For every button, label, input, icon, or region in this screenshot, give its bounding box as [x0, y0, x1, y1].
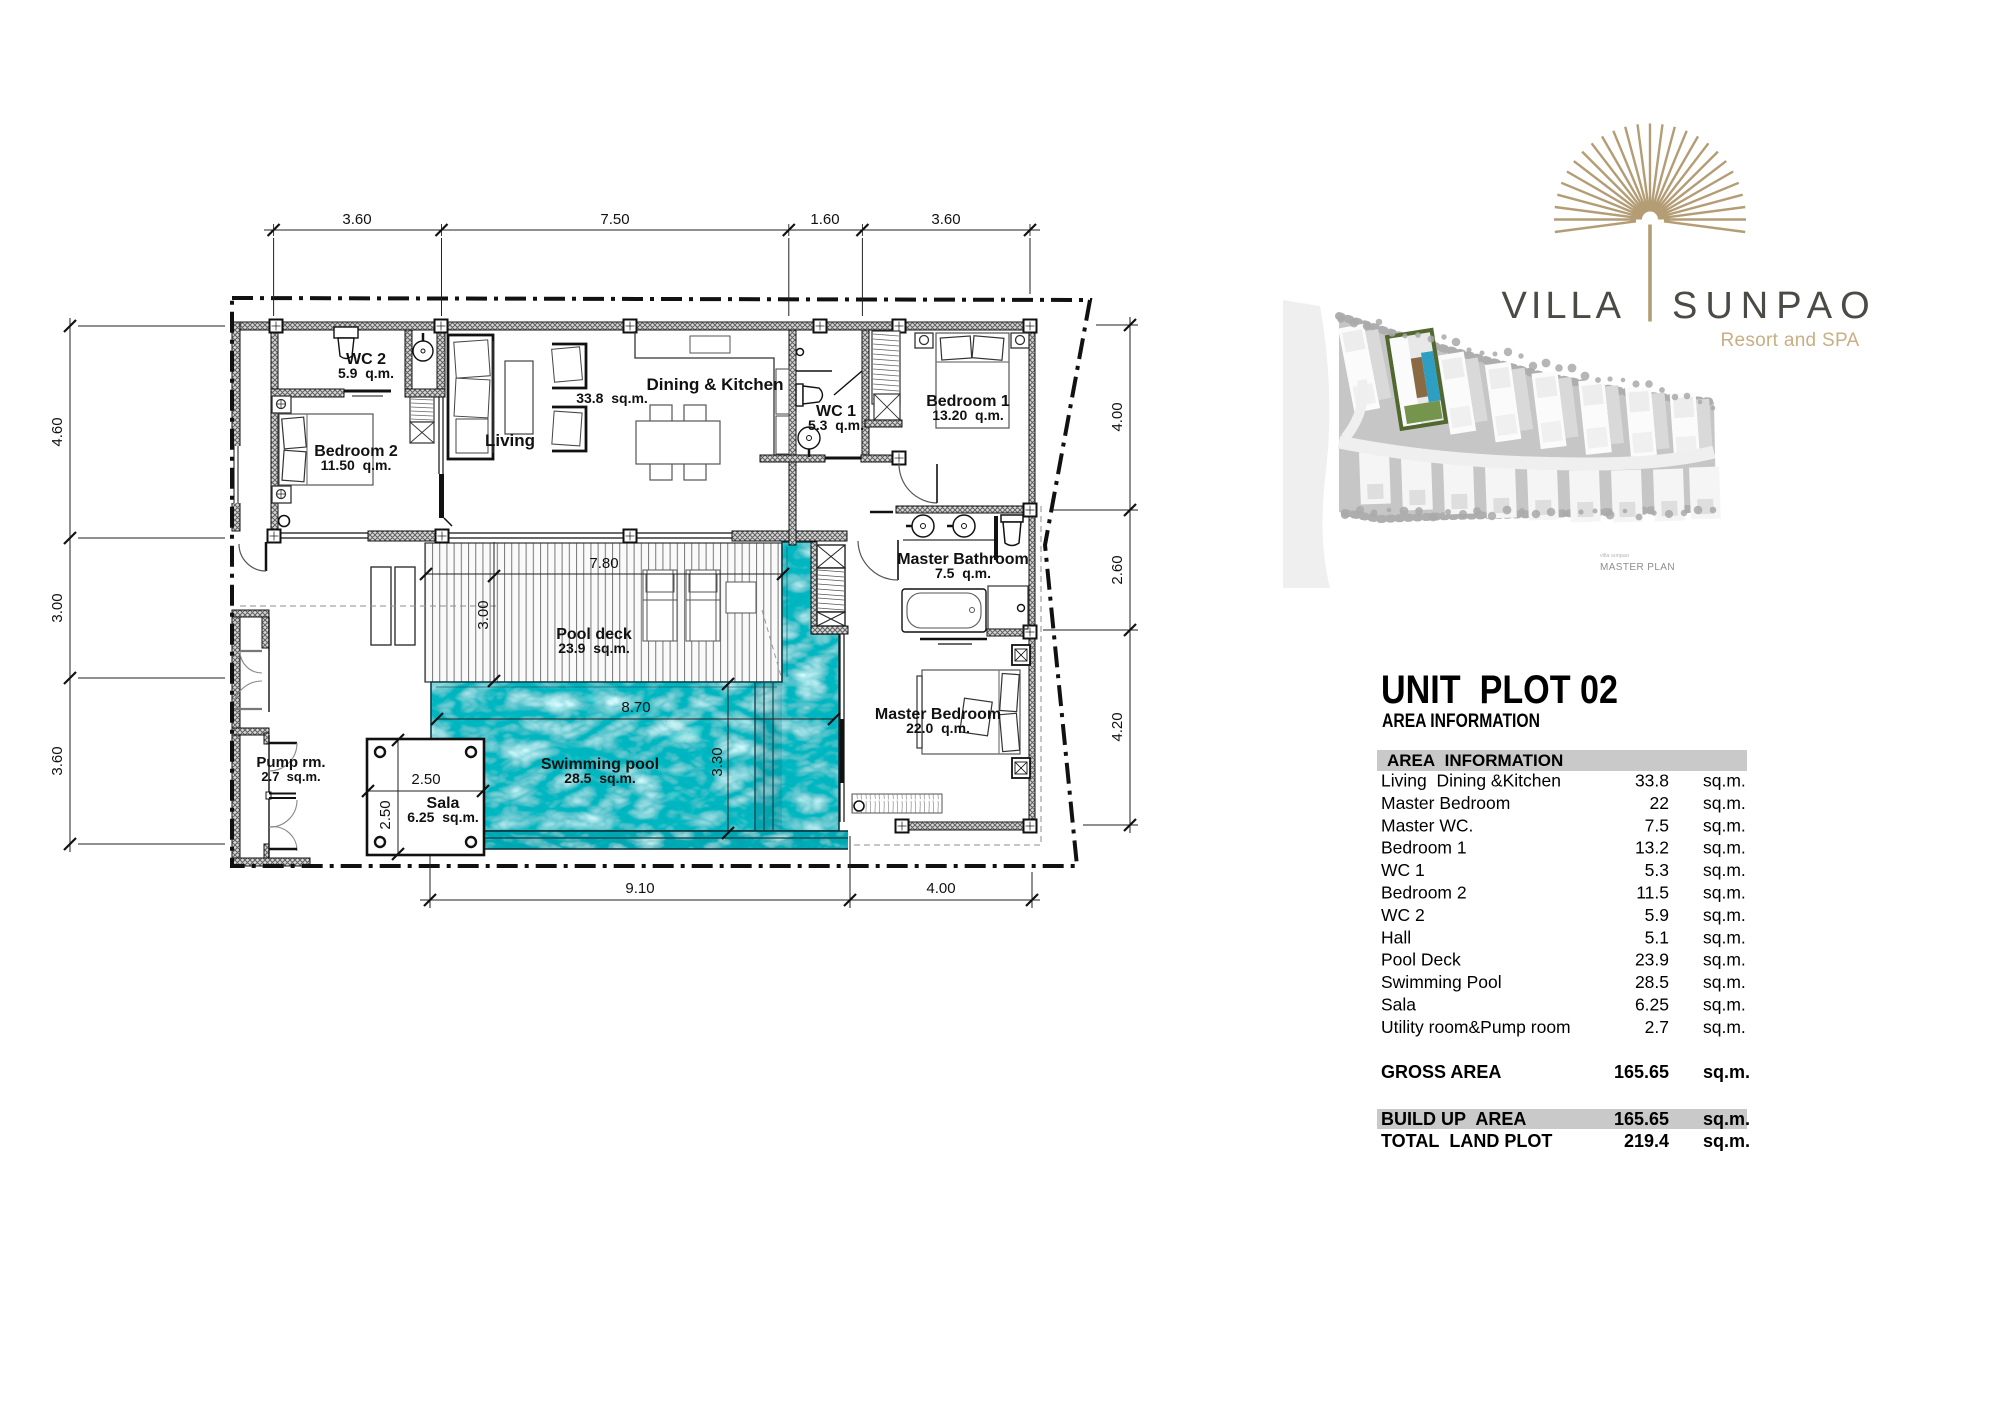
svg-text:7.50: 7.50	[600, 211, 629, 228]
svg-text:2.50: 2.50	[377, 800, 394, 829]
svg-text:sq.m.: sq.m.	[1703, 972, 1746, 992]
svg-text:23.9 sq.m.: 23.9 sq.m.	[558, 640, 630, 656]
svg-text:sq.m.: sq.m.	[1703, 838, 1746, 858]
svg-text:165.65: 165.65	[1614, 1109, 1669, 1129]
svg-text:sq.m.: sq.m.	[1703, 883, 1746, 903]
svg-text:Utility room&Pump room: Utility room&Pump room	[1381, 1017, 1571, 1037]
svg-text:33.8 sq.m.: 33.8 sq.m.	[576, 390, 648, 406]
svg-text:AREA INFORMATION: AREA INFORMATION	[1382, 711, 1540, 732]
svg-text:6.25 sq.m.: 6.25 sq.m.	[407, 809, 479, 825]
svg-text:Sala: Sala	[1381, 995, 1416, 1015]
svg-text:Master WC.: Master WC.	[1381, 815, 1473, 835]
svg-text:9.10: 9.10	[625, 880, 654, 897]
svg-text:1.60: 1.60	[810, 211, 839, 228]
svg-text:13.2: 13.2	[1635, 838, 1669, 858]
svg-text:23.9: 23.9	[1635, 950, 1669, 970]
svg-text:4.00: 4.00	[926, 880, 955, 897]
svg-text:Living Dining &Kitchen: Living Dining &Kitchen	[1381, 771, 1561, 791]
svg-text:sq.m.: sq.m.	[1703, 1109, 1750, 1129]
svg-text:GROSS AREA: GROSS AREA	[1381, 1062, 1501, 1082]
svg-text:sq.m.: sq.m.	[1703, 860, 1746, 880]
svg-text:11.50 q.m.: 11.50 q.m.	[321, 457, 392, 473]
svg-text:MASTER PLAN: MASTER PLAN	[1600, 562, 1675, 573]
svg-text:3.60: 3.60	[49, 746, 66, 775]
svg-text:7.5: 7.5	[1645, 815, 1669, 835]
svg-text:Hall: Hall	[1381, 927, 1411, 947]
svg-text:5.3 q.m.: 5.3 q.m.	[808, 417, 864, 433]
svg-text:Bedroom 2: Bedroom 2	[1381, 883, 1467, 903]
svg-text:Swimming Pool: Swimming Pool	[1381, 972, 1502, 992]
svg-text:5.9 q.m.: 5.9 q.m.	[338, 365, 394, 381]
svg-text:WC 1: WC 1	[1381, 860, 1425, 880]
svg-text:AREA INFORMATION: AREA INFORMATION	[1387, 751, 1563, 770]
svg-text:TOTAL LAND PLOT: TOTAL LAND PLOT	[1381, 1131, 1552, 1151]
svg-text:sq.m.: sq.m.	[1703, 771, 1746, 791]
svg-text:Bedroom 1: Bedroom 1	[1381, 838, 1467, 858]
svg-text:5.9: 5.9	[1645, 905, 1669, 925]
svg-text:sq.m.: sq.m.	[1703, 950, 1746, 970]
svg-text:22.0 q.m.: 22.0 q.m.	[906, 720, 970, 736]
svg-text:28.5: 28.5	[1635, 972, 1669, 992]
svg-text:UNIT PLOT 02: UNIT PLOT 02	[1381, 668, 1618, 712]
svg-text:villa sunpao: villa sunpao	[1600, 553, 1629, 559]
svg-text:VILLA: VILLA	[1501, 285, 1625, 327]
svg-text:3.00: 3.00	[49, 593, 66, 622]
svg-text:sq.m.: sq.m.	[1703, 793, 1746, 813]
svg-text:Living: Living	[485, 431, 535, 450]
svg-text:5.3: 5.3	[1645, 860, 1669, 880]
svg-text:Dining & Kitchen: Dining & Kitchen	[647, 375, 784, 394]
svg-text:sq.m.: sq.m.	[1703, 905, 1746, 925]
svg-text:4.20: 4.20	[1109, 712, 1126, 741]
svg-text:28.5 sq.m.: 28.5 sq.m.	[564, 770, 636, 786]
svg-text:3.30: 3.30	[709, 747, 726, 776]
svg-text:sq.m.: sq.m.	[1703, 1131, 1750, 1151]
svg-text:13.20 q.m.: 13.20 q.m.	[932, 407, 1004, 423]
svg-text:219.4: 219.4	[1624, 1131, 1669, 1151]
svg-text:2.7 sq.m.: 2.7 sq.m.	[261, 769, 320, 784]
svg-text:2.7: 2.7	[1645, 1017, 1669, 1037]
svg-text:SUNPAO: SUNPAO	[1672, 285, 1878, 327]
svg-text:WC 2: WC 2	[1381, 905, 1425, 925]
svg-text:7.80: 7.80	[589, 555, 618, 572]
svg-text:sq.m.: sq.m.	[1703, 1062, 1750, 1082]
svg-text:4.00: 4.00	[1109, 402, 1126, 431]
svg-text:2.50: 2.50	[411, 771, 440, 788]
svg-text:7.5 q.m.: 7.5 q.m.	[935, 565, 991, 581]
svg-text:33.8: 33.8	[1635, 771, 1669, 791]
svg-text:BUILD UP AREA: BUILD UP AREA	[1381, 1109, 1526, 1129]
svg-text:165.65: 165.65	[1614, 1062, 1669, 1082]
svg-text:Pool Deck: Pool Deck	[1381, 950, 1461, 970]
svg-text:Resort and SPA: Resort and SPA	[1720, 330, 1859, 351]
svg-text:sq.m.: sq.m.	[1703, 927, 1746, 947]
svg-text:2.60: 2.60	[1109, 555, 1126, 584]
svg-text:Master Bedroom: Master Bedroom	[1381, 793, 1510, 813]
svg-text:11.5: 11.5	[1636, 883, 1669, 903]
svg-text:4.60: 4.60	[49, 417, 66, 446]
svg-text:3.60: 3.60	[931, 211, 960, 228]
svg-text:6.25: 6.25	[1635, 995, 1669, 1015]
svg-text:sq.m.: sq.m.	[1703, 815, 1746, 835]
svg-text:sq.m.: sq.m.	[1703, 1017, 1746, 1037]
svg-text:3.60: 3.60	[342, 211, 371, 228]
svg-text:22: 22	[1650, 793, 1669, 813]
svg-text:sq.m.: sq.m.	[1703, 995, 1746, 1015]
svg-text:5.1: 5.1	[1645, 927, 1669, 947]
svg-text:8.70: 8.70	[621, 699, 650, 716]
svg-text:3.00: 3.00	[475, 600, 492, 629]
